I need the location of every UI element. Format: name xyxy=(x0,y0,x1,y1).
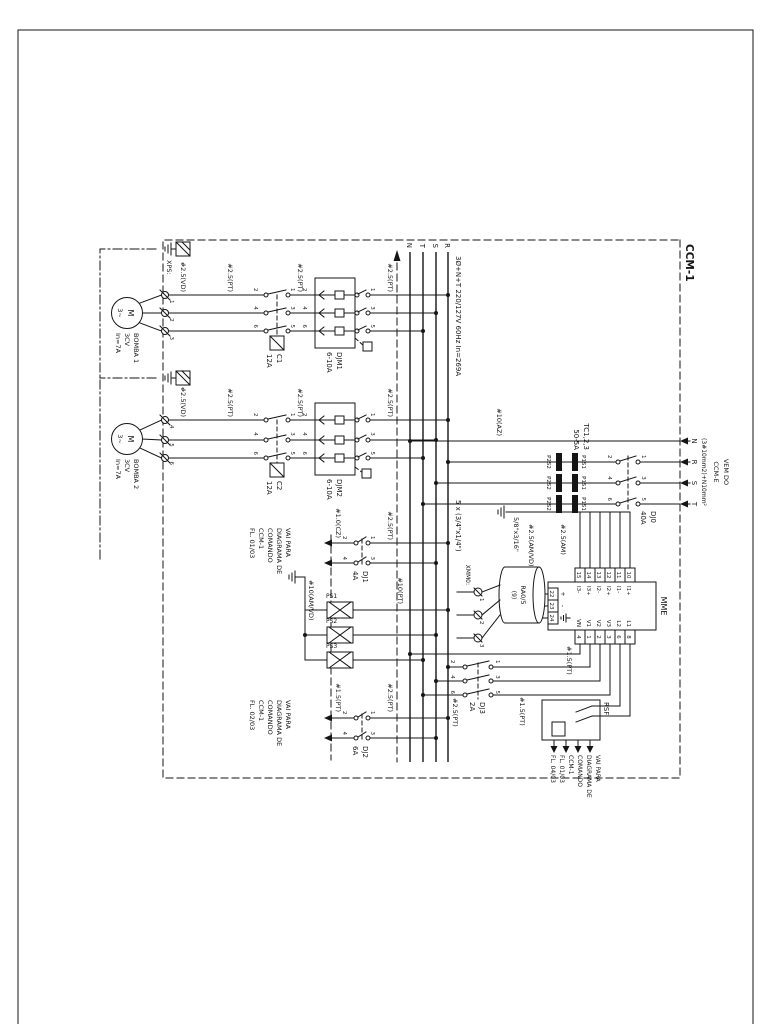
xmm0-label: XMM0: xyxy=(464,565,471,585)
ps1: PS1 xyxy=(326,593,353,618)
motor-2: M 3~ BOMBA 2 3CV In=7A xyxy=(112,424,143,490)
svg-text:VAI PARA: VAI PARA xyxy=(284,700,292,730)
dj3-breaker: 1 3 5 2 4 6 DJ3 2A #1.5(PT) #2.5(PT) xyxy=(421,660,526,727)
svg-text:24: 24 xyxy=(548,615,554,622)
b1-wire-mid: #2.5(PT) xyxy=(296,263,304,292)
tc-label-2: 50-5A xyxy=(572,429,580,450)
svg-text:FL. 01/03: FL. 01/03 xyxy=(558,755,565,783)
wire-label-n: #10(AZ) xyxy=(495,408,503,436)
c2-name: C2 xyxy=(275,481,283,490)
svg-text:23: 23 xyxy=(548,603,554,610)
svg-text:FL. 01/03: FL. 01/03 xyxy=(248,528,256,558)
svg-text:2 4 6: 2 4 6 xyxy=(252,288,258,329)
dj1-goto-note: VAI PARA DIAGRAMA DE COMANDO CCM-1 FL. 0… xyxy=(248,528,292,574)
bus-letter-n: N xyxy=(405,243,413,248)
dj1-rating: 4A xyxy=(351,571,359,580)
svg-text:I1-: I1- xyxy=(615,586,621,593)
rsf-relay: RSF VAI PARA DIAGRAMA DE COMANDO CCM-1 F… xyxy=(542,700,610,798)
svg-text:2 4: 2 4 xyxy=(341,711,347,736)
mme-wire-label: #1.5(PT) xyxy=(565,646,573,675)
svg-text:+: + xyxy=(559,591,566,596)
svg-text:COMANDO: COMANDO xyxy=(266,700,274,735)
svg-text:FL. 02/03: FL. 02/03 xyxy=(248,700,256,730)
current-transformers: TC1,2,3 50-5A P1S1 P2S2 P1S1 P2S2 P1S1 P… xyxy=(498,422,630,568)
svg-text:I1+: I1+ xyxy=(625,586,631,596)
b1-terminals: 1 2 3 xyxy=(160,290,174,341)
svg-text:I2+: I2+ xyxy=(605,586,611,596)
dj1-name: DJ1 xyxy=(361,571,369,583)
phase-s: S xyxy=(690,481,698,486)
bus-letter-r: R xyxy=(443,243,451,248)
ps3: PS3 xyxy=(326,643,353,668)
dj2-name: DJ2 xyxy=(361,746,369,758)
feeder-note-2: CCM-E xyxy=(712,461,720,482)
feeder-note-3: (3#10mm2)+N10mm² xyxy=(700,438,707,507)
svg-text:PS2: PS2 xyxy=(326,618,337,625)
schematic-svg: CCM-1 R S T N 3Ø+N+T 220/127V 60Hz In=26… xyxy=(0,0,768,1024)
djm2-breaker: 1 3 5 DJM2 6-10A 2 4 6 xyxy=(301,403,375,500)
goto-arrow-icon xyxy=(324,560,332,567)
svg-text:L1: L1 xyxy=(625,620,631,627)
svg-text:PS1: PS1 xyxy=(326,593,337,600)
dj1-wire-bus: #2.5(PT) xyxy=(386,511,394,540)
djm1-rating: 6-10A xyxy=(325,352,333,373)
b2-wire-motor: #2.5(VD) xyxy=(179,387,187,417)
svg-text:DIAGRAMA DE: DIAGRAMA DE xyxy=(585,755,592,798)
svg-text:15: 15 xyxy=(575,572,581,579)
ct-wire-am: #2.5(AM) xyxy=(559,524,567,555)
svg-text:CCM-1: CCM-1 xyxy=(257,528,265,549)
mme-label: MME xyxy=(659,597,668,616)
sec-bar-spec: 5/8"x3/16" xyxy=(512,517,520,552)
svg-text:-: - xyxy=(559,605,566,607)
contactor-c1: 1 3 5 C1 12A 2 4 6 xyxy=(252,288,295,368)
motor-1: M 3~ BOMBA 1 3CV In=7A xyxy=(112,298,143,364)
rsf-label: RSF xyxy=(602,702,610,715)
c2-rating: 12A xyxy=(265,481,273,495)
svg-text:3: 3 xyxy=(605,635,611,639)
branch-bomba1: #2.5(PT) 1 3 5 DJM1 6-10A 2 4 6 #2.5(PT)… xyxy=(112,262,451,373)
svg-text:10: 10 xyxy=(625,572,631,579)
dj0-poles xyxy=(616,456,640,510)
motor-2-m: M xyxy=(126,436,135,443)
dj2-wire-bus: #2.5(PT) xyxy=(386,683,394,712)
b1-wire-motor: #2.5(VD) xyxy=(179,262,187,292)
svg-text:2: 2 xyxy=(478,621,484,625)
dj3-name: DJ3 xyxy=(478,702,486,714)
svg-text:1: 1 xyxy=(585,635,591,639)
ct-ground-icon xyxy=(498,506,504,518)
ps-ground-icon xyxy=(289,571,295,583)
busbar-spec: 5 x (3/4"x1/4") xyxy=(454,500,462,552)
enclosure-label: CCM-1 xyxy=(683,244,695,282)
svg-text:1 3 5: 1 3 5 xyxy=(494,660,500,695)
svg-text:V3: V3 xyxy=(605,620,611,628)
b1-wire-low: #2.5(PT) xyxy=(226,263,234,292)
svg-text:2 4 6: 2 4 6 xyxy=(301,288,307,329)
incoming-feeder: VEM DO CCM-E (3#10mm2)+N10mm² N R S T #1… xyxy=(408,408,730,507)
tc-label-1: TC1,2,3 xyxy=(582,422,590,450)
dj3-rating: 2A xyxy=(468,702,476,711)
dj2-branch: #2.5(PT) 1 3 2 4 DJ2 6A #1.5(PT) VAI PAR… xyxy=(248,683,450,758)
svg-text:COMANDO: COMANDO xyxy=(576,755,583,787)
transducer-label-2: (9) xyxy=(510,591,517,600)
branch-bomba2: #2.5(PT) 1 3 5 DJM2 6-10A 2 4 6 #2.5(PT)… xyxy=(112,387,451,500)
dj1-branch: #2.5(PT) 1 3 2 4 DJ1 4A #1.0(CZ) VAI PAR… xyxy=(248,508,450,583)
enclosure-boundary: CCM-1 xyxy=(163,240,695,778)
ps-earth-wire: #10(AM/VD) xyxy=(307,580,315,621)
gland-ground-2 xyxy=(165,371,190,385)
svg-text:P1S1: P1S1 xyxy=(580,476,586,490)
svg-text:13: 13 xyxy=(595,572,601,579)
b2-wire-mid: #2.5(PT) xyxy=(296,388,304,417)
svg-text:DIAGRAMA DE: DIAGRAMA DE xyxy=(275,700,283,746)
svg-text:1: 1 xyxy=(478,598,484,602)
goto-arrow-icon xyxy=(324,540,332,547)
dj2-goto-note: VAI PARA DIAGRAMA DE COMANDO CCM-1 FL. 0… xyxy=(248,700,292,746)
svg-text:I2-: I2- xyxy=(595,586,601,593)
svg-text:In=7A: In=7A xyxy=(114,333,122,354)
djm2-rating: 6-10A xyxy=(325,479,333,500)
dj3-wire-bottom: #2.5(PT) xyxy=(451,698,459,727)
svg-text:2 4 6: 2 4 6 xyxy=(301,413,307,456)
dj1-wire-out: #1.0(CZ) xyxy=(334,508,342,538)
svg-text:4 5 6: 4 5 6 xyxy=(168,425,174,466)
svg-text:4: 4 xyxy=(575,635,581,639)
svg-text:I3+: I3+ xyxy=(585,586,591,596)
xmm0-terminals: XMM0: 1 2 3 xyxy=(457,565,484,648)
djm2-name: DJM2 xyxy=(335,479,343,497)
svg-text:CCM-1: CCM-1 xyxy=(257,700,265,721)
svg-text:8: 8 xyxy=(625,635,631,639)
xps-cable-zone xyxy=(100,249,156,560)
svg-text:L2: L2 xyxy=(615,620,621,627)
djm1-name: DJM1 xyxy=(335,352,343,370)
svg-text:1 3: 1 3 xyxy=(369,711,375,736)
ps-arresters: #10(PT) PS1 PS2 PS3 #10(AM/VD) xyxy=(289,571,450,668)
svg-text:P1S1: P1S1 xyxy=(580,455,586,469)
svg-text:12: 12 xyxy=(605,572,611,579)
goto-arrow-icon xyxy=(324,735,332,742)
svg-text:PS3: PS3 xyxy=(326,643,337,650)
b2-wire-low: #2.5(PT) xyxy=(226,388,234,417)
feeder-arrow-icons xyxy=(680,438,690,508)
svg-text:BOMBA 2: BOMBA 2 xyxy=(132,459,140,489)
svg-text:11: 11 xyxy=(615,572,621,579)
svg-text:In=7A: In=7A xyxy=(114,459,122,480)
motor-2-ph: 3~ xyxy=(116,434,124,444)
pe-bus-arrow-icon xyxy=(394,250,401,261)
ps2: PS2 xyxy=(326,618,353,643)
svg-text:P2S2: P2S2 xyxy=(545,476,551,490)
ps-wire-bus: #10(PT) xyxy=(396,577,404,604)
transducer-label-1: RA0/5 xyxy=(519,585,527,604)
bus-letter-s: S xyxy=(431,244,439,249)
xps-label: XPS: xyxy=(165,260,173,275)
svg-text:3CV: 3CV xyxy=(123,459,131,473)
goto-arrow-icon xyxy=(324,715,332,722)
djm1-breaker: 1 3 5 DJM1 6-10A 2 4 6 xyxy=(301,278,375,373)
dj2-rating: 6A xyxy=(351,746,359,755)
dj0-name: DJ0 xyxy=(649,511,657,523)
c1-name: C1 xyxy=(275,354,283,363)
ground-icon xyxy=(165,372,171,384)
feeder-note-1: VEM DO xyxy=(722,459,730,485)
rsf-output-arrow-icons xyxy=(551,740,594,753)
rsf-goto-note: VAI PARA DIAGRAMA DE COMANDO CCM-1 FL. 0… xyxy=(549,755,601,798)
ct-wire-amvd: #2.5(AM/VD) xyxy=(527,524,535,567)
svg-text:3CV: 3CV xyxy=(123,333,131,347)
motor-1-ph: 3~ xyxy=(116,308,124,318)
transducer: RA0/5 (9) xyxy=(482,567,548,638)
svg-text:CCM-1: CCM-1 xyxy=(567,755,574,775)
svg-text:I3-: I3- xyxy=(575,586,581,593)
contactor-c2: 1 3 5 C2 12A 2 4 6 xyxy=(252,413,295,495)
svg-text:P2S2: P2S2 xyxy=(545,497,551,511)
svg-text:3: 3 xyxy=(478,644,484,648)
phase-n: N xyxy=(690,438,698,443)
svg-text:BOMBA 1: BOMBA 1 xyxy=(132,333,140,363)
svg-text:1 3: 1 3 xyxy=(369,536,375,561)
svg-text:14: 14 xyxy=(585,572,591,579)
gland-ground-1 xyxy=(165,242,190,256)
svg-text:2 4 6: 2 4 6 xyxy=(252,413,258,456)
mme-meter: MME 10I1+ 11I1- 12I2+ 13I2- 14I3+ 15I3- … xyxy=(548,568,668,644)
svg-text:2 4: 2 4 xyxy=(341,536,347,561)
motor-1-m: M xyxy=(126,310,135,317)
svg-text:2: 2 xyxy=(595,635,601,639)
b2-wire-bus: #2.5(PT) xyxy=(386,388,394,417)
bus-letter-t: T xyxy=(418,243,426,249)
dj0-rating: 40A xyxy=(639,511,647,525)
dj2-wire-out: #1.5(PT) xyxy=(334,683,342,712)
svg-text:VAI PARA: VAI PARA xyxy=(284,528,292,558)
c1-rating: 12A xyxy=(265,354,273,368)
svg-text:P2S2: P2S2 xyxy=(545,455,551,469)
svg-text:P1S1: P1S1 xyxy=(580,497,586,511)
b1-wire-bus: #2.5(PT) xyxy=(386,263,394,292)
svg-text:V1: V1 xyxy=(585,620,591,627)
svg-text:22: 22 xyxy=(548,591,554,598)
svg-text:VN: VN xyxy=(575,619,581,627)
schematic-sheet: CCM-1 R S T N 3Ø+N+T 220/127V 60Hz In=26… xyxy=(0,0,768,1024)
ground-icon xyxy=(165,243,171,255)
svg-text:VAI PARA: VAI PARA xyxy=(594,755,601,783)
svg-text:6: 6 xyxy=(615,635,621,639)
phase-t: T xyxy=(690,501,698,507)
svg-text:2 4 6: 2 4 6 xyxy=(449,660,455,695)
phase-r: R xyxy=(690,460,698,465)
system-spec: 3Ø+N+T 220/127V 60Hz In=269A xyxy=(454,256,462,376)
dj3-wire-top: #1.5(PT) xyxy=(518,697,526,726)
svg-text:FL. 04/03: FL. 04/03 xyxy=(549,755,556,783)
svg-text:COMANDO: COMANDO xyxy=(266,528,274,563)
svg-text:V2: V2 xyxy=(595,620,601,627)
svg-text:DIAGRAMA DE: DIAGRAMA DE xyxy=(275,528,283,574)
